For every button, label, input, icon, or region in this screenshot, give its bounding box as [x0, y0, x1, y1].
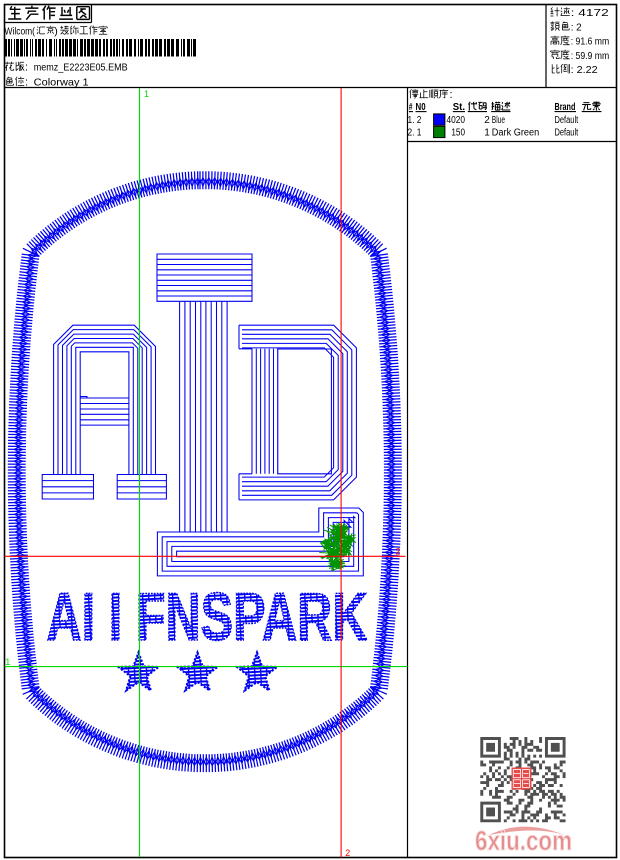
- svg-text:AI I FNSPARK: AI I FNSPARK: [47, 579, 368, 655]
- svg-text:Wilcom(: Wilcom(: [5, 26, 36, 38]
- svg-text:1. 2: 1. 2: [408, 115, 422, 126]
- svg-text:1: 1: [484, 128, 490, 139]
- svg-text:Dark Green: Dark Green: [492, 128, 539, 139]
- svg-text:1: 1: [5, 657, 10, 667]
- svg-text:1: 1: [144, 89, 149, 99]
- svg-text:: 4172: : 4172: [571, 7, 609, 19]
- svg-text:Colorway 1: Colorway 1: [34, 77, 89, 89]
- svg-text:Blue: Blue: [492, 115, 505, 126]
- svg-text:6xiu.com: 6xiu.com: [475, 825, 572, 856]
- svg-text:Default: Default: [555, 128, 579, 139]
- svg-text:2: 2: [345, 848, 350, 858]
- svg-text:150: 150: [451, 128, 465, 139]
- svg-text::: :: [25, 62, 28, 74]
- svg-text:memz_E2223E05.EMB: memz_E2223E05.EMB: [34, 62, 128, 74]
- svg-text:: 2: : 2: [571, 21, 582, 33]
- svg-text:): ): [54, 26, 58, 38]
- svg-text::: :: [450, 89, 453, 101]
- svg-text:4020: 4020: [447, 115, 466, 126]
- svg-text:Default: Default: [555, 115, 579, 126]
- svg-text:2. 1: 2. 1: [408, 128, 422, 139]
- svg-text::: :: [25, 77, 28, 89]
- svg-text:2: 2: [484, 115, 490, 126]
- svg-text:: 2.22: : 2.22: [571, 64, 598, 76]
- svg-text:: 59.9 mm: : 59.9 mm: [571, 50, 610, 62]
- svg-text:2: 2: [396, 547, 401, 557]
- svg-text:: 91.6 mm: : 91.6 mm: [571, 36, 610, 48]
